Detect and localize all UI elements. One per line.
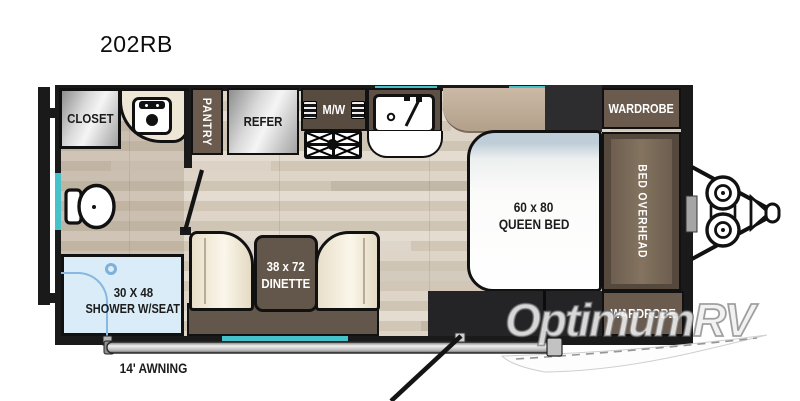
bed-label: QUEEN BED: [470, 218, 598, 232]
watermark: OptimumRV: [486, 297, 772, 343]
pantry-label: PANTRY: [200, 97, 214, 146]
refrigerator-label: REFER: [244, 114, 283, 129]
burner-grate-icon: [303, 101, 317, 119]
shower-drain-icon: [105, 263, 117, 275]
bathroom-sink-drain-icon: [146, 114, 158, 126]
dinette-bench-right: [315, 231, 380, 311]
stove-center-icon: [327, 139, 338, 150]
kitchen-counter: [367, 131, 443, 158]
pantry-cabinet: PANTRY: [191, 88, 223, 155]
closet-label: CLOSET: [67, 111, 113, 126]
bed-size-label: 60 x 80: [470, 201, 598, 215]
bed-overhead-cabinet: BED OVERHEAD: [602, 132, 681, 291]
window-front: [55, 173, 61, 230]
dinette-bench-left: [189, 231, 254, 311]
shower-size-label: 30 X 48: [64, 286, 202, 299]
model-title: 202RB: [100, 31, 173, 58]
bed-overhead-label: BED OVERHEAD: [636, 164, 648, 258]
wardrobe-front: WARDROBE: [602, 88, 681, 129]
bed-head-platform: [443, 88, 545, 133]
dinette-label: DINETTE: [257, 277, 315, 290]
kitchen-sink: [373, 94, 435, 133]
hitch-coupler-icon: [751, 197, 779, 229]
wardrobe-front-label: WARDROBE: [609, 102, 674, 116]
bedroom-corner-cabinet: [545, 85, 602, 132]
closet-cabinet: CLOSET: [59, 88, 121, 149]
hitch-a-frame: [686, 167, 773, 259]
microwave-cabinet: M/W: [301, 88, 367, 131]
burner-grate-icon: [351, 101, 365, 119]
awning-label: 14' AWNING: [88, 362, 218, 376]
entry-door-swing: [391, 336, 461, 401]
propane-tanks-icon: [707, 177, 739, 246]
microwave-label: M/W: [323, 103, 346, 117]
front-cap-bar: [38, 87, 50, 305]
dinette-size-label: 38 x 72: [257, 260, 315, 273]
refrigerator: REFER: [227, 88, 299, 155]
dinette-table: 38 x 72 DINETTE: [254, 235, 318, 312]
bathroom-faucet-icon: [139, 101, 165, 109]
window-dinette: [222, 336, 348, 341]
floorplan-canvas: 202RB CLOSET 30 X 48 SHOWER W/: [0, 0, 800, 401]
queen-bed: 60 x 80 QUEEN BED: [467, 130, 602, 292]
shower-label: SHOWER W/SEAT: [64, 303, 202, 316]
